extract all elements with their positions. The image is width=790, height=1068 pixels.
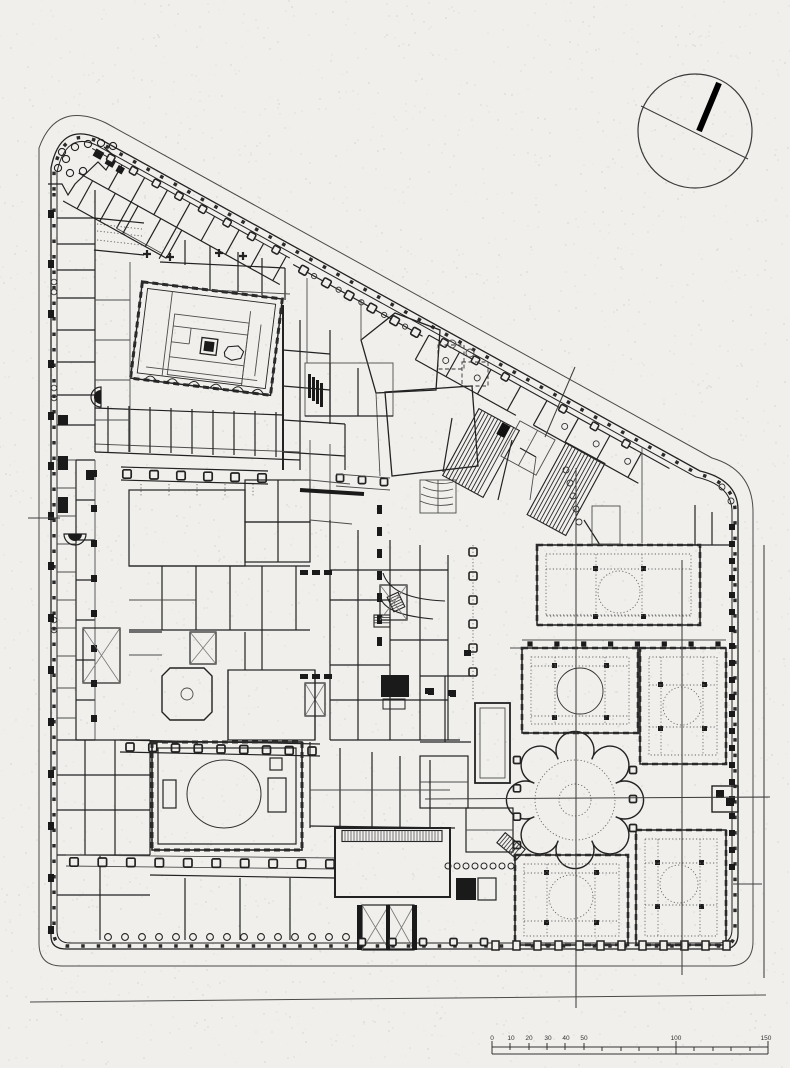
svg-text:40: 40 xyxy=(562,1035,570,1042)
svg-text:0: 0 xyxy=(490,1035,494,1042)
svg-text:20: 20 xyxy=(525,1035,533,1042)
svg-text:100: 100 xyxy=(671,1035,682,1042)
svg-text:150: 150 xyxy=(761,1035,772,1042)
svg-text:30: 30 xyxy=(544,1035,552,1042)
svg-text:10: 10 xyxy=(507,1035,515,1042)
svg-text:50: 50 xyxy=(580,1035,588,1042)
